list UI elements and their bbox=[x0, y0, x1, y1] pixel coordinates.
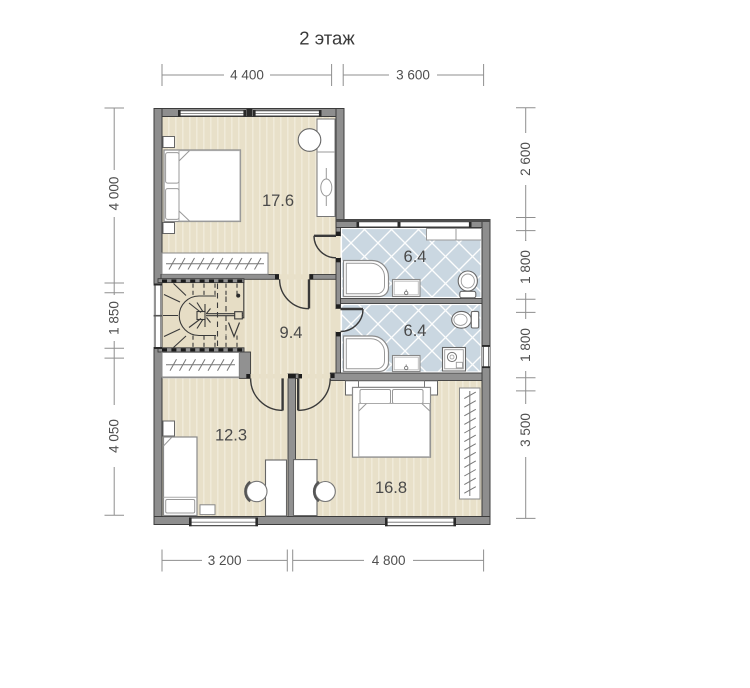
svg-text:16.8: 16.8 bbox=[375, 479, 407, 497]
svg-text:3 600: 3 600 bbox=[396, 68, 430, 83]
svg-text:9.4: 9.4 bbox=[280, 324, 303, 342]
svg-text:4 050: 4 050 bbox=[107, 419, 122, 453]
svg-text:1 800: 1 800 bbox=[518, 328, 533, 362]
svg-text:4 800: 4 800 bbox=[372, 553, 406, 568]
svg-text:2 этаж: 2 этаж bbox=[299, 28, 355, 49]
svg-text:6.4: 6.4 bbox=[404, 248, 427, 266]
svg-text:17.6: 17.6 bbox=[262, 192, 294, 210]
svg-text:4 400: 4 400 bbox=[230, 68, 264, 83]
svg-text:6.4: 6.4 bbox=[404, 322, 427, 340]
svg-text:4 000: 4 000 bbox=[107, 177, 122, 211]
svg-text:1 800: 1 800 bbox=[518, 250, 533, 284]
svg-text:12.3: 12.3 bbox=[215, 427, 247, 445]
svg-text:1 850: 1 850 bbox=[107, 301, 122, 335]
svg-text:2 600: 2 600 bbox=[518, 142, 533, 176]
svg-text:3 500: 3 500 bbox=[518, 413, 533, 447]
svg-text:3 200: 3 200 bbox=[208, 553, 242, 568]
